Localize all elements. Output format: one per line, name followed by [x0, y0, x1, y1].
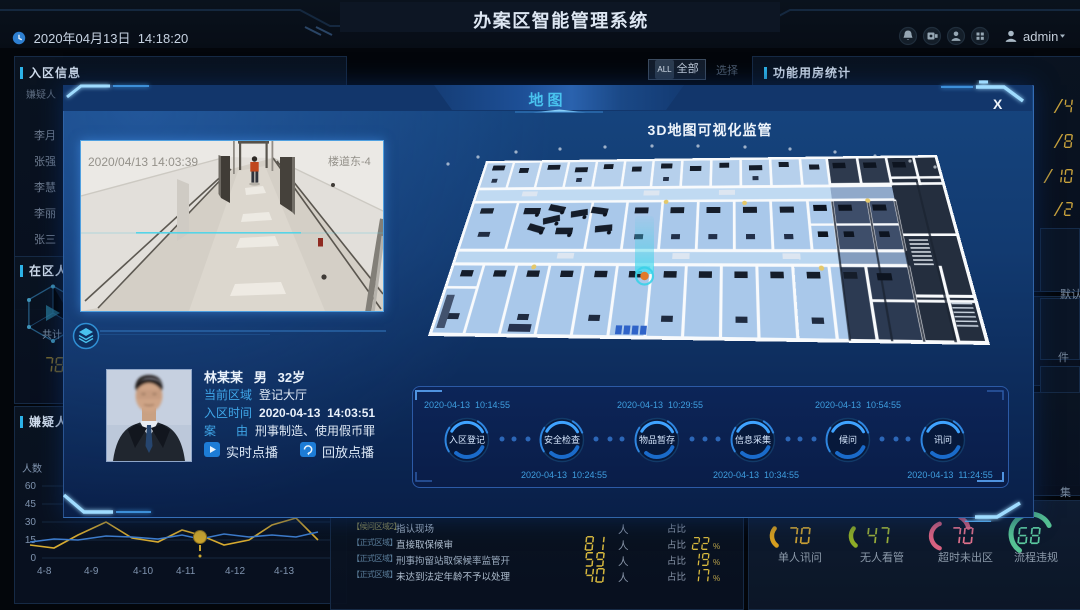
svg-text:60: 60	[25, 481, 37, 492]
svg-text:4-9: 4-9	[84, 566, 99, 577]
svg-text:2020-04-13 10:54:55: 2020-04-13 10:54:55	[815, 400, 901, 410]
svg-text:30: 30	[25, 517, 37, 528]
svg-text:2020-04-13 10:14:55: 2020-04-13 10:14:55	[424, 400, 510, 410]
svg-text:信息采集: 信息采集	[735, 434, 771, 445]
svg-text:4-8: 4-8	[37, 566, 52, 577]
svg-text:2020/04/13 14:03:39: 2020/04/13 14:03:39	[88, 155, 198, 169]
svg-text:候问: 候问	[839, 434, 857, 445]
svg-text:4-11: 4-11	[176, 566, 196, 577]
svg-text:%: %	[713, 558, 720, 567]
svg-text:入区登记: 入区登记	[449, 435, 485, 445]
svg-text:讯问: 讯问	[934, 434, 952, 445]
svg-text:超时未出区: 超时未出区	[938, 550, 993, 564]
svg-text:0: 0	[30, 553, 36, 564]
svg-text:4-12: 4-12	[225, 566, 245, 577]
svg-text:物品暂存: 物品暂存	[639, 434, 675, 445]
svg-text:单人讯问: 单人讯问	[778, 551, 822, 564]
svg-text:2020-04-13 10:34:55: 2020-04-13 10:34:55	[713, 470, 799, 480]
svg-text:楼道东-4: 楼道东-4	[328, 154, 371, 168]
svg-text:流程违规: 流程违规	[1014, 550, 1058, 564]
svg-text:%: %	[713, 574, 720, 583]
svg-text:2020-04-13 10:24:55: 2020-04-13 10:24:55	[521, 470, 607, 480]
svg-text:45: 45	[25, 499, 37, 510]
svg-text:2020-04-13 11:24:55: 2020-04-13 11:24:55	[907, 470, 992, 480]
svg-text:人数: 人数	[22, 462, 42, 475]
svg-text:无人看管: 无人看管	[860, 550, 904, 564]
svg-text:%: %	[713, 542, 720, 551]
svg-text:4-13: 4-13	[274, 566, 294, 577]
svg-text:2020-04-13 10:29:55: 2020-04-13 10:29:55	[617, 400, 703, 410]
svg-text:安全检查: 安全检查	[544, 434, 580, 445]
svg-text:4-10: 4-10	[133, 566, 153, 577]
